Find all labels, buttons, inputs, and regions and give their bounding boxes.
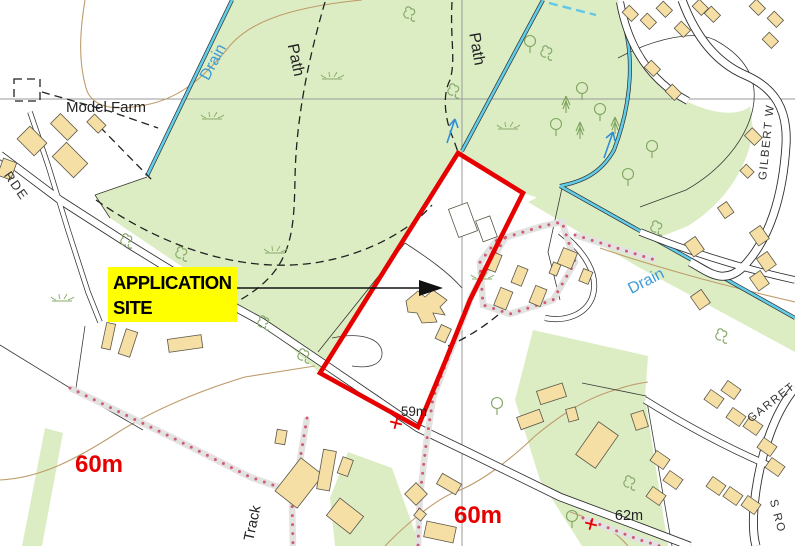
- building: [275, 429, 287, 445]
- spot-height-62m: 62m: [615, 508, 643, 524]
- spot-height-59m: 59m: [401, 404, 427, 419]
- os-map: Model Farm Drain Drain Path Path Track R…: [0, 0, 795, 546]
- annotation-line2: SITE: [113, 297, 152, 318]
- map-canvas: Model Farm Drain Drain Path Path Track R…: [0, 0, 795, 546]
- spot-height-60m-south: 60m: [454, 502, 502, 529]
- annotation-line1: APPLICATION: [113, 272, 232, 293]
- label-model-farm: Model Farm: [66, 99, 146, 116]
- spot-height-60m-west: 60m: [75, 451, 123, 478]
